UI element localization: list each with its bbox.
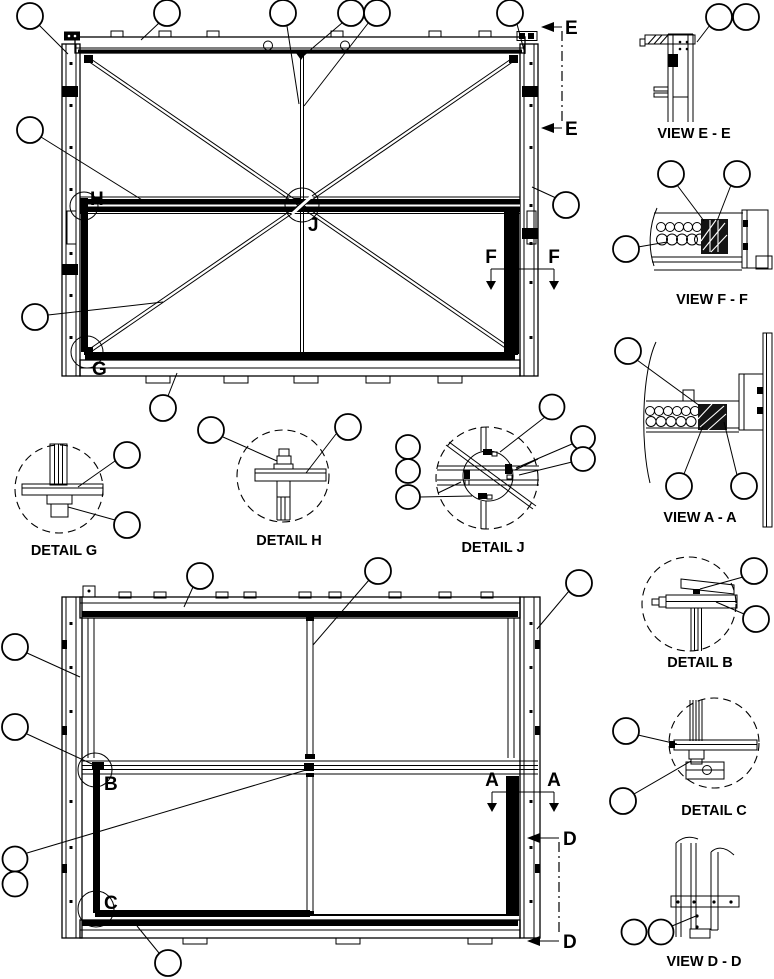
callout-balloon bbox=[150, 395, 176, 421]
detail-c-ref-letter: C bbox=[104, 893, 118, 914]
callout-balloon bbox=[114, 512, 140, 538]
view-ee-label: VIEW E - E bbox=[657, 126, 731, 142]
view-ee-drawing: VIEW E - E bbox=[640, 4, 759, 142]
detail-h-ref-letter: H bbox=[90, 189, 104, 210]
callout-balloon bbox=[649, 920, 674, 945]
section-d-letter-bottom: D bbox=[563, 932, 577, 953]
top-elevation-drawing: H G J E E F F bbox=[17, 0, 579, 421]
callout-balloon bbox=[666, 473, 692, 499]
callout-balloon bbox=[658, 161, 684, 187]
view-ff-drawing: VIEW F - F bbox=[613, 161, 772, 308]
callout-balloon bbox=[198, 417, 224, 443]
callout-balloon bbox=[724, 161, 750, 187]
callout-balloon bbox=[610, 788, 636, 814]
callout-balloon bbox=[622, 920, 647, 945]
callout-balloon bbox=[613, 718, 639, 744]
callout-balloon bbox=[497, 0, 523, 26]
callout-balloon bbox=[114, 442, 140, 468]
section-a-letter-left: A bbox=[485, 770, 499, 791]
detail-b-label: DETAIL B bbox=[667, 655, 733, 671]
callout-balloon bbox=[396, 435, 420, 459]
right-rail bbox=[520, 44, 538, 376]
callout-balloon bbox=[154, 0, 180, 26]
detail-h-view: DETAIL H bbox=[198, 414, 361, 549]
detail-b-view: DETAIL B bbox=[642, 557, 769, 671]
section-d-letter-top: D bbox=[563, 829, 577, 850]
detail-h-label: DETAIL H bbox=[256, 533, 322, 549]
callout-balloon bbox=[553, 192, 579, 218]
callout-balloon bbox=[335, 414, 361, 440]
detail-b-ref-letter: B bbox=[104, 774, 118, 795]
callout-balloon bbox=[2, 714, 28, 740]
callout-balloon bbox=[706, 4, 732, 30]
callout-balloon bbox=[338, 0, 364, 26]
callout-balloon bbox=[17, 117, 43, 143]
mid-rail bbox=[82, 761, 538, 774]
callout-balloon bbox=[396, 459, 420, 483]
left-panel-dark-border bbox=[81, 212, 88, 352]
right-panel-dark-strip bbox=[504, 208, 519, 354]
callout-balloon bbox=[571, 447, 595, 471]
bottom-elevation-drawing: B C A A D D bbox=[2, 558, 592, 976]
callout-balloon bbox=[155, 950, 181, 976]
detail-j-view: DETAIL J bbox=[396, 395, 595, 557]
section-f-letter-left: F bbox=[485, 247, 497, 268]
callout-balloon bbox=[17, 3, 43, 29]
section-f-letter-right: F bbox=[548, 247, 560, 268]
section-f-marker: F F bbox=[485, 247, 560, 290]
detail-j-label: DETAIL J bbox=[461, 540, 524, 556]
callout-balloon bbox=[540, 395, 565, 420]
view-aa-drawing: VIEW A - A bbox=[615, 333, 772, 527]
callout-balloon bbox=[22, 304, 48, 330]
section-e-marker: E E bbox=[541, 18, 578, 140]
callout-balloon bbox=[364, 0, 390, 26]
callout-balloon bbox=[733, 4, 759, 30]
detail-g-view: DETAIL G bbox=[15, 442, 140, 559]
detail-g-ref-letter: G bbox=[92, 359, 107, 380]
callout-balloon bbox=[270, 0, 296, 26]
callout-balloon bbox=[613, 236, 639, 262]
bottom-panel-dark-border bbox=[95, 910, 310, 917]
callout-balloon bbox=[365, 558, 391, 584]
right-panel-dark-strip bbox=[506, 776, 519, 916]
callout-balloon bbox=[2, 634, 28, 660]
callout-balloon bbox=[731, 473, 757, 499]
callout-balloon bbox=[566, 570, 592, 596]
left-rail bbox=[62, 597, 82, 938]
view-dd-drawing: VIEW D - D bbox=[622, 837, 742, 970]
parts-diagram-svg: H G J E E F F bbox=[0, 0, 774, 979]
view-dd-label: VIEW D - D bbox=[667, 954, 742, 970]
detail-c-view: DETAIL C bbox=[610, 698, 759, 819]
callout-balloon bbox=[187, 563, 213, 589]
view-aa-label: VIEW A - A bbox=[663, 510, 737, 526]
callout-balloon bbox=[741, 558, 767, 584]
section-e-letter-top: E bbox=[565, 18, 578, 39]
view-ff-label: VIEW F - F bbox=[676, 292, 748, 308]
top-rail bbox=[80, 586, 520, 618]
callout-balloon bbox=[743, 606, 769, 632]
detail-c-label: DETAIL C bbox=[681, 803, 747, 819]
detail-j-ref-letter: J bbox=[308, 215, 319, 236]
section-a-marker: A A bbox=[485, 770, 561, 812]
diagram-page: H G J E E F F bbox=[0, 0, 774, 979]
callout-balloon bbox=[3, 847, 28, 872]
bottom-rail bbox=[80, 920, 520, 944]
section-a-letter-right: A bbox=[547, 770, 561, 791]
detail-g-label: DETAIL G bbox=[31, 543, 97, 559]
callout-balloon bbox=[396, 485, 420, 509]
section-e-letter-bottom: E bbox=[565, 119, 578, 140]
right-rail bbox=[520, 597, 540, 938]
callout-balloon bbox=[3, 872, 28, 897]
callout-balloon bbox=[615, 338, 641, 364]
